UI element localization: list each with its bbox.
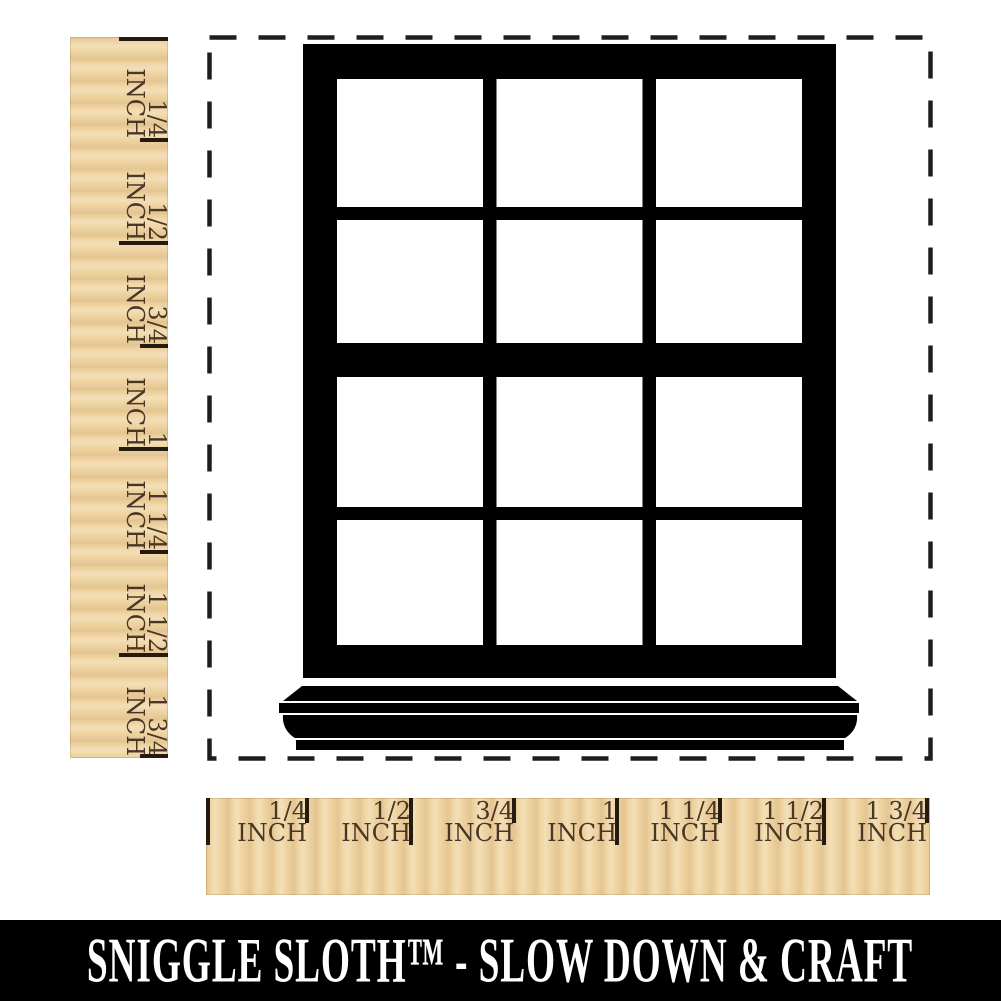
ruler-label-unit: INCH (124, 455, 146, 550)
ruler-label: 3/4INCH (124, 249, 168, 344)
window-pane (497, 79, 643, 207)
window-pane (656, 520, 802, 645)
ruler-label: 3/4INCH (419, 800, 514, 844)
ruler-label: 1INCH (124, 352, 168, 447)
window-pane (656, 377, 802, 507)
window-pane (497, 377, 643, 507)
ruler-label-unit: INCH (832, 822, 927, 844)
ruler-label-fraction: 1/4 (146, 43, 168, 138)
window-frame (303, 44, 836, 678)
ruler-label-unit: INCH (124, 661, 146, 756)
ruler-label-fraction: 1 1/2 (146, 558, 168, 653)
window-pane (337, 79, 483, 207)
ruler-label-unit: INCH (124, 352, 146, 447)
ruler-label: 1 3/4INCH (124, 661, 168, 756)
ruler-label: 1/2INCH (316, 800, 411, 844)
ruler-tick (206, 798, 210, 845)
ruler-label-unit: INCH (124, 249, 146, 344)
window-sill-cap (283, 686, 857, 701)
window-sill-cove (283, 715, 857, 738)
ruler-bottom: 1/4INCH1/2INCH3/4INCH1INCH1 1/4INCH1 1/2… (206, 798, 930, 895)
ruler-tick (140, 344, 168, 348)
ruler-label: 1INCH (522, 800, 617, 844)
ruler-label-unit: INCH (124, 43, 146, 138)
brand-text: SNIGGLE SLOTH™ - SLOW DOWN & CRAFT (87, 924, 913, 998)
window-panes (337, 79, 802, 645)
ruler-tick (119, 37, 168, 41)
ruler-label: 1 1/4INCH (625, 800, 720, 844)
ruler-tick (119, 653, 168, 657)
ruler-label-unit: INCH (625, 822, 720, 844)
window-sill-base (296, 740, 844, 750)
ruler-label: 1 1/4INCH (124, 455, 168, 550)
window-pane (337, 520, 483, 645)
ruler-label-unit: INCH (419, 822, 514, 844)
ruler-tick (140, 550, 168, 554)
window-pane (656, 220, 802, 343)
window-pane (337, 377, 483, 507)
window-pane (656, 79, 802, 207)
window-sill-fillet (279, 703, 859, 713)
ruler-label: 1/4INCH (212, 800, 307, 844)
ruler-label-unit: INCH (316, 822, 411, 844)
ruler-label-fraction: 1/2 (146, 146, 168, 241)
ruler-label: 1 3/4INCH (832, 800, 927, 844)
window-pane (497, 520, 643, 645)
ruler-label-fraction: 1 3/4 (146, 661, 168, 756)
ruler-label-unit: INCH (124, 146, 146, 241)
ruler-label: 1/4INCH (124, 43, 168, 138)
ruler-label: 1 1/2INCH (729, 800, 824, 844)
ruler-label-unit: INCH (522, 822, 617, 844)
stamp-outline (210, 38, 931, 759)
ruler-label-fraction: 1 (146, 352, 168, 447)
ruler-label: 1/2INCH (124, 146, 168, 241)
ruler-label-unit: INCH (212, 822, 307, 844)
window-pane (337, 220, 483, 343)
ruler-label-fraction: 3/4 (146, 249, 168, 344)
window-graphic (279, 44, 859, 750)
ruler-left: 1/4INCH1/2INCH3/4INCH1INCH1 1/4INCH1 1/2… (70, 37, 168, 758)
ruler-label-unit: INCH (124, 558, 146, 653)
ruler-tick (119, 241, 168, 245)
brand-banner: SNIGGLE SLOTH™ - SLOW DOWN & CRAFT (0, 920, 1001, 1001)
product-image: { "stamp": { "design": "twelve-pane doub… (0, 0, 1001, 1001)
window-pane (497, 220, 643, 343)
ruler-label-unit: INCH (729, 822, 824, 844)
ruler-tick (140, 138, 168, 142)
ruler-label: 1 1/2INCH (124, 558, 168, 653)
ruler-tick (119, 447, 168, 451)
ruler-label-fraction: 1 1/4 (146, 455, 168, 550)
